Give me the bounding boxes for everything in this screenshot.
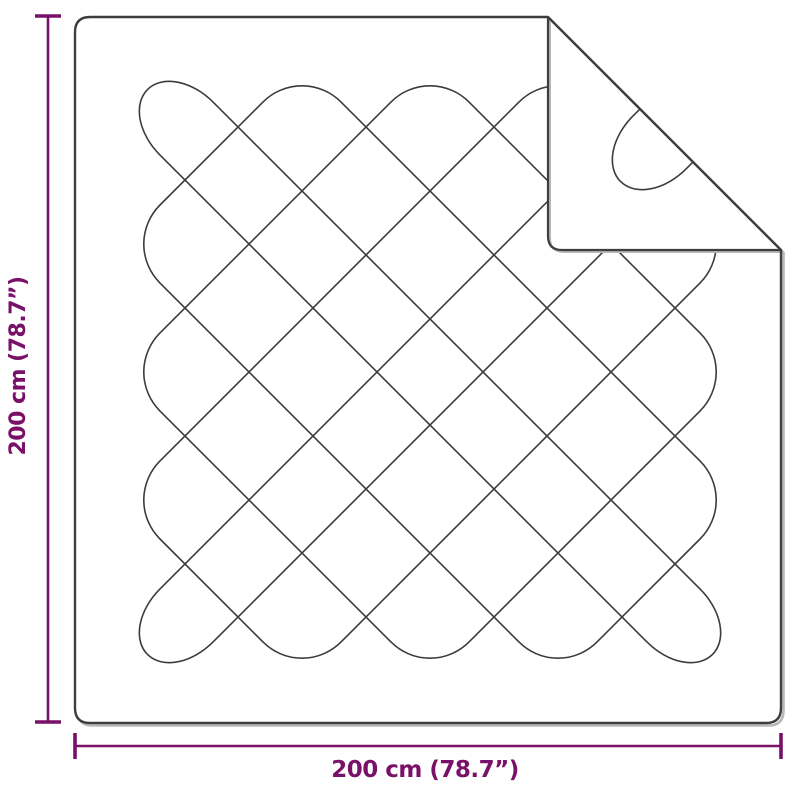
- product-dimension-diagram: 200 cm (78.7”) 200 cm (78.7”): [0, 0, 800, 800]
- height-dimension: [35, 16, 61, 722]
- blanket-body: [75, 17, 781, 723]
- height-dimension-label: 200 cm (78.7”): [4, 216, 34, 516]
- width-dimension-label: 200 cm (78.7”): [275, 755, 575, 785]
- blanket-diagram: [0, 0, 800, 800]
